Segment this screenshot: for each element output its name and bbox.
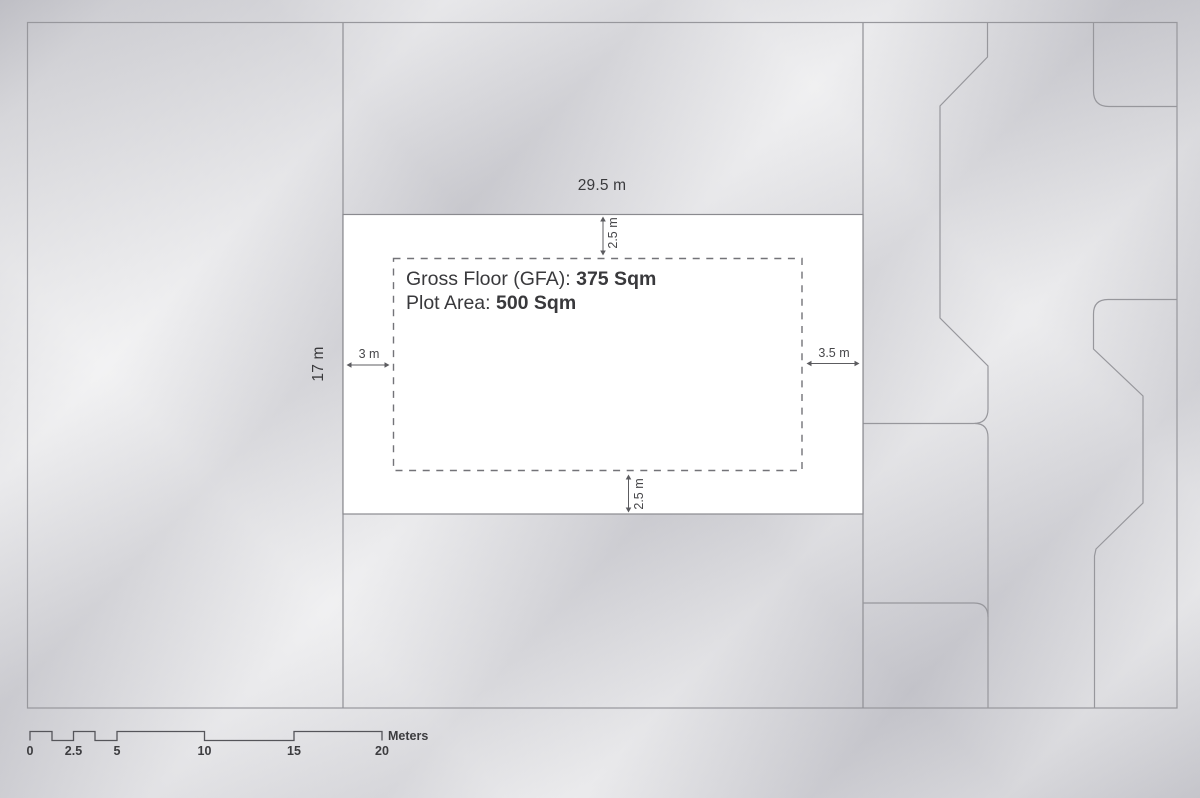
road-edge-west-upper (863, 23, 988, 424)
parcel-divider-lower (863, 603, 988, 617)
plot-boundary (343, 215, 863, 515)
scale-bar (30, 732, 382, 741)
site-plan: Gross Floor (GFA): 375 Sqm Plot Area: 50… (0, 0, 1200, 798)
road-edge-west-lower (975, 424, 988, 709)
plan-canvas (0, 0, 1200, 798)
road-edge-east (1094, 300, 1178, 709)
parcel-line-northeast (1094, 23, 1178, 107)
